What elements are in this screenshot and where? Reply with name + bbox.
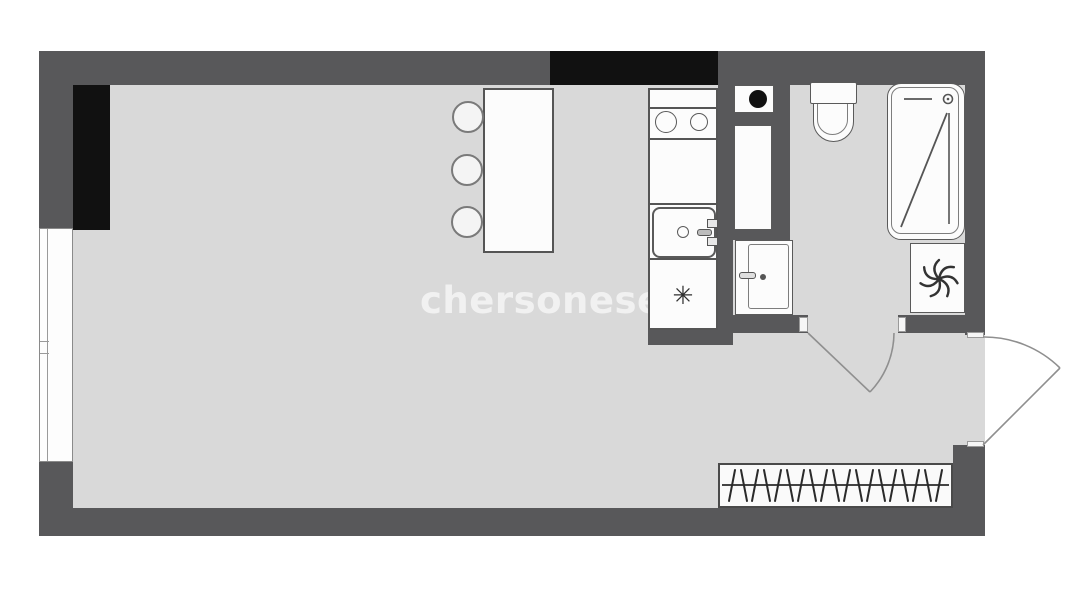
bathroom-door-jamb	[799, 317, 808, 332]
bar-stool	[451, 154, 483, 186]
window-pane-line	[47, 229, 48, 461]
fridge-snowflake-icon: ✳	[648, 283, 718, 309]
kitchen-end-wall	[648, 330, 733, 345]
window-mullion-tick	[40, 353, 49, 354]
wall-right-upper	[965, 51, 985, 335]
burner-small-icon	[690, 113, 708, 131]
toilet-tank	[810, 82, 857, 104]
bar-stool	[452, 101, 484, 133]
bar-stool	[451, 206, 483, 238]
shower-glass-and-head	[888, 84, 966, 241]
entry-door-jamb	[967, 332, 984, 338]
vent-shaft-dot-icon	[749, 90, 767, 108]
shower-cabin	[887, 83, 965, 240]
toilet-bowl-inner	[817, 102, 848, 135]
watermark: chersonese	[420, 282, 663, 319]
sink-drain-icon	[677, 226, 689, 238]
counter-divider	[648, 258, 718, 260]
faucet-valve-icon	[707, 237, 718, 246]
wardrobe	[718, 463, 953, 508]
bathroom-wall-left-segment	[733, 315, 808, 333]
burner-large-icon	[655, 111, 677, 133]
fan-icon	[917, 257, 961, 301]
entry-door-arc	[983, 337, 1060, 368]
bathroom-door-jamb	[898, 317, 906, 332]
entry-door-leaf	[983, 368, 1060, 445]
bar-table	[483, 88, 554, 253]
hanger-rail-icon	[720, 465, 951, 506]
faucet-spout-icon	[697, 229, 712, 236]
black-wall-segment	[550, 51, 718, 85]
wall-bottom	[39, 508, 985, 536]
floor-plan: chersonese ✳	[0, 0, 1080, 596]
cabinet-handle-icon	[739, 272, 756, 279]
duct-cabinet	[734, 125, 772, 230]
cabinet-knob-icon	[760, 274, 766, 280]
wall-left-upper	[39, 51, 73, 228]
extractor-fan-unit	[910, 243, 965, 313]
entry-door-jamb	[967, 441, 984, 447]
bathroom-wall-right-segment	[898, 315, 985, 333]
counter-divider	[648, 138, 718, 140]
faucet-valve-icon	[707, 219, 718, 228]
window	[39, 228, 73, 462]
wall-right-lower-column	[953, 445, 985, 536]
storage-cabinet	[735, 240, 793, 315]
black-structural-column	[73, 85, 110, 230]
window-mullion-tick	[40, 341, 49, 342]
counter-divider	[648, 203, 718, 205]
wall-top	[39, 51, 985, 85]
counter-divider	[648, 107, 718, 109]
